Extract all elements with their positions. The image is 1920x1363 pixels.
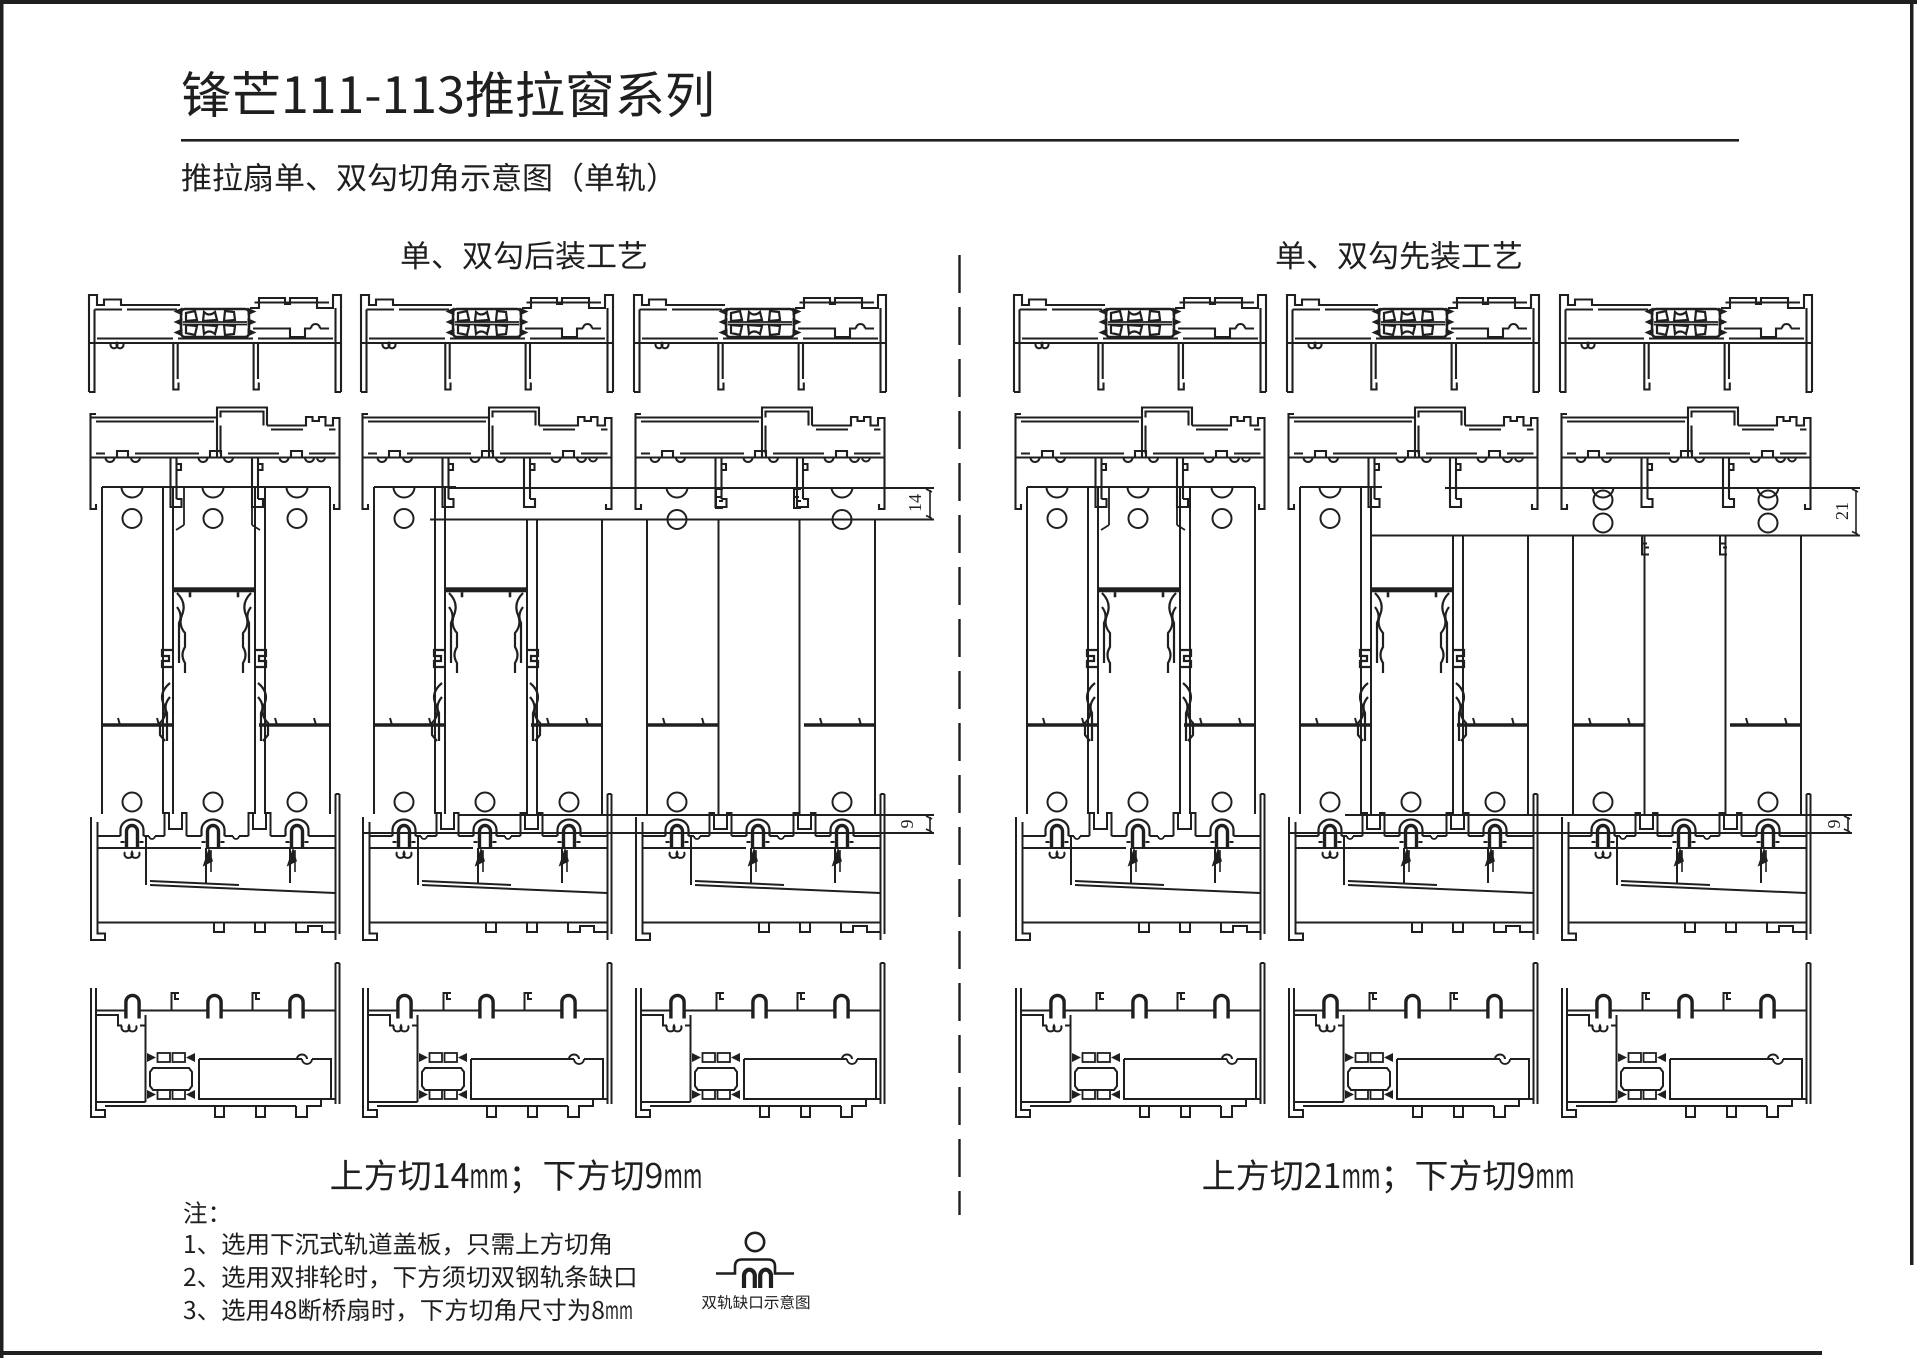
svg-text:9: 9 (897, 820, 917, 829)
svg-text:14: 14 (905, 494, 925, 512)
svg-text:9: 9 (1824, 820, 1844, 829)
svg-text:21: 21 (1832, 502, 1852, 520)
